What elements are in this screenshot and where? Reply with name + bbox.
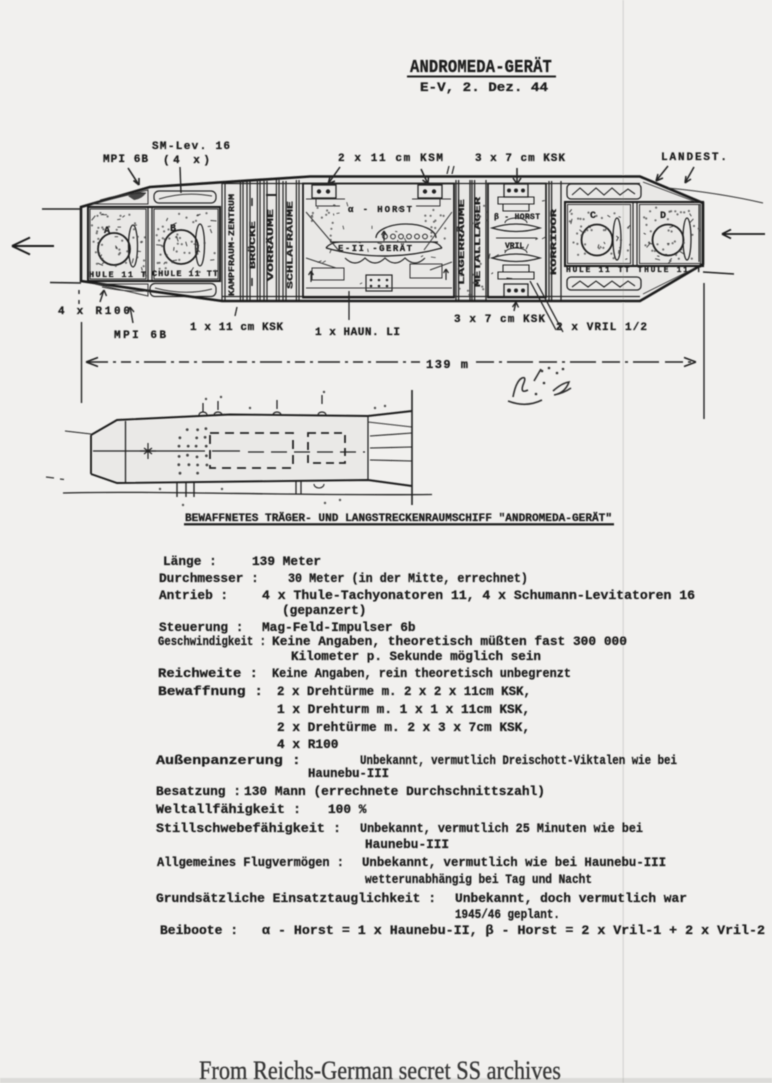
- svg-text:139 m: 139 m: [426, 358, 468, 372]
- svg-text:B: B: [170, 224, 176, 235]
- svg-text:3 x 7 cm KSK: 3 x 7 cm KSK: [475, 153, 565, 165]
- svg-text:α - HORST: α - HORST: [348, 205, 413, 215]
- svg-text:ANDROMEDA-GERÄT: ANDROMEDA-GERÄT: [410, 57, 552, 78]
- svg-text:Weltallfähigkeit :: Weltallfähigkeit :: [156, 802, 301, 817]
- svg-text:Besatzung :: Besatzung :: [156, 784, 241, 799]
- svg-text:Steuerung :: Steuerung :: [159, 620, 243, 635]
- svg-text:1 x HAUN. LI: 1 x HAUN. LI: [315, 327, 400, 339]
- svg-text:β - HORST: β - HORST: [494, 213, 540, 222]
- svg-text:Kilometer p. Sekunde möglich s: Kilometer p. Sekunde möglich sein: [291, 649, 541, 664]
- svg-text:KORRIDOR: KORRIDOR: [551, 208, 559, 275]
- svg-text:3 x 7 cm KSK: 3 x 7 cm KSK: [454, 314, 545, 326]
- svg-text:1 x 11 cm KSK: 1 x 11 cm KSK: [190, 322, 283, 334]
- svg-text:HULE 11 T: HULE 11 T: [89, 270, 146, 280]
- svg-text:1 x Drehturm m. 1 x 1 x 11cm K: 1 x Drehturm m. 1 x 1 x 11cm KSK,: [277, 702, 530, 717]
- svg-text:Durchmesser :: Durchmesser :: [159, 571, 259, 586]
- svg-text:Geschwindigkeit :: Geschwindigkeit :: [158, 634, 266, 649]
- svg-text:BRÜCKE: BRÜCKE: [247, 221, 258, 269]
- svg-text:From Reichs-German secret SS a: From Reichs-German secret SS archives: [199, 1056, 561, 1083]
- svg-text:2 x Drehtürme m. 2 x 3 x 7cm K: 2 x Drehtürme m. 2 x 3 x 7cm KSK,: [277, 720, 530, 735]
- svg-text:MPI 6B: MPI 6B: [103, 154, 148, 166]
- svg-text:wetterunabhängig bei Tag und N: wetterunabhängig bei Tag und Nacht: [365, 872, 592, 887]
- svg-text:1945/46 geplant.: 1945/46 geplant.: [455, 907, 560, 922]
- svg-text:Haunebu-III: Haunebu-III: [308, 766, 389, 781]
- svg-text:C: C: [590, 211, 596, 222]
- svg-text:2 x 11 cm KSM: 2 x 11 cm KSM: [338, 153, 443, 165]
- svg-text:4 x R100: 4 x R100: [277, 737, 338, 752]
- svg-text:100 %: 100 %: [328, 802, 367, 817]
- svg-text:Stillschwebefähigkeit :: Stillschwebefähigkeit :: [156, 821, 341, 836]
- svg-text:α - Horst = 1 x Haunebu-II, β: α - Horst = 1 x Haunebu-II, β - Horst = …: [262, 923, 765, 938]
- svg-text:Antrieb :: Antrieb :: [159, 588, 228, 603]
- svg-text:Grundsätzliche Einsatztauglich: Grundsätzliche Einsatztauglichkeit :: [156, 891, 436, 906]
- svg-text:Außenpanzerung :: Außenpanzerung :: [156, 753, 301, 768]
- svg-text:E-II -GERÄT: E-II -GERÄT: [338, 243, 413, 254]
- svg-text:BEWAFFNETES TRÄGER- UND LANGST: BEWAFFNETES TRÄGER- UND LANGSTRECKENRAUM…: [185, 512, 612, 525]
- svg-text:KAMPFRAUM-ZENTRUM: KAMPFRAUM-ZENTRUM: [228, 194, 237, 296]
- svg-text:Unbekannt, vermutlich Dreischo: Unbekannt, vermutlich Dreischott-Viktale…: [360, 753, 677, 768]
- svg-text:Beiboote :: Beiboote :: [160, 923, 238, 938]
- svg-text:139 Meter: 139 Meter: [252, 554, 321, 569]
- svg-text:Bewaffnung :: Bewaffnung :: [158, 684, 263, 699]
- svg-text:Mag-Feld-Impulser 6b: Mag-Feld-Impulser 6b: [262, 620, 416, 635]
- svg-text:HULE 11 TT THULE 11 T: HULE 11 TT THULE 11 T: [566, 266, 701, 275]
- svg-text:LANDEST.: LANDEST.: [661, 152, 727, 164]
- svg-text:2 x VRIL 1/2: 2 x VRIL 1/2: [556, 322, 647, 334]
- svg-text:Haunebu-III: Haunebu-III: [365, 837, 449, 852]
- svg-text:D: D: [660, 211, 666, 222]
- svg-text:(gepanzert): (gepanzert): [282, 603, 366, 618]
- svg-text:E-V, 2. Dez. 44: E-V, 2. Dez. 44: [420, 80, 548, 95]
- svg-text:SM-Lev. 16: SM-Lev. 16: [152, 141, 230, 153]
- svg-text:2 x Drehtürme m. 2 x 2 x 11cm: 2 x Drehtürme m. 2 x 2 x 11cm KSK,: [277, 684, 531, 699]
- svg-text:Reichweite :: Reichweite :: [158, 666, 258, 681]
- svg-text:Unbekannt, doch vermutlich war: Unbekannt, doch vermutlich war: [455, 891, 687, 906]
- svg-text:Unbekannt, vermutlich 25 Minut: Unbekannt, vermutlich 25 Minuten wie bei: [360, 821, 643, 836]
- svg-text:METALLLAGER: METALLLAGER: [475, 196, 483, 287]
- svg-text:CHULE 11 TT: CHULE 11 TT: [152, 269, 218, 279]
- svg-text:LAGERRÄUME: LAGERRÄUME: [458, 198, 467, 285]
- svg-text:30 Meter (in der Mitte, errech: 30 Meter (in der Mitte, errechnet): [288, 571, 528, 586]
- svg-text:SCHLAFRÄUME: SCHLAFRÄUME: [285, 201, 296, 289]
- svg-text:Keine Angaben, theoretisch müß: Keine Angaben, theoretisch müßten fast 3…: [272, 634, 627, 649]
- svg-text:Unbekannt, vermutlich wie bei: Unbekannt, vermutlich wie bei Haunebu-II…: [362, 855, 666, 870]
- svg-text:130 Mann (errechnete Durchschn: 130 Mann (errechnete Durchschnittszahl): [244, 784, 545, 799]
- svg-text:Länge :: Länge :: [163, 554, 217, 569]
- svg-text:Allgemeines Flugvermögen :: Allgemeines Flugvermögen :: [157, 855, 344, 870]
- svg-text:VORRÄUME: VORRÄUME: [265, 209, 276, 281]
- svg-text:Keine Angaben, rein theoretisc: Keine Angaben, rein theoretisch unbegren…: [272, 666, 571, 681]
- svg-text:4 x Thule-Tachyonatoren 11, 4: 4 x Thule-Tachyonatoren 11, 4 x Schumann…: [262, 588, 695, 603]
